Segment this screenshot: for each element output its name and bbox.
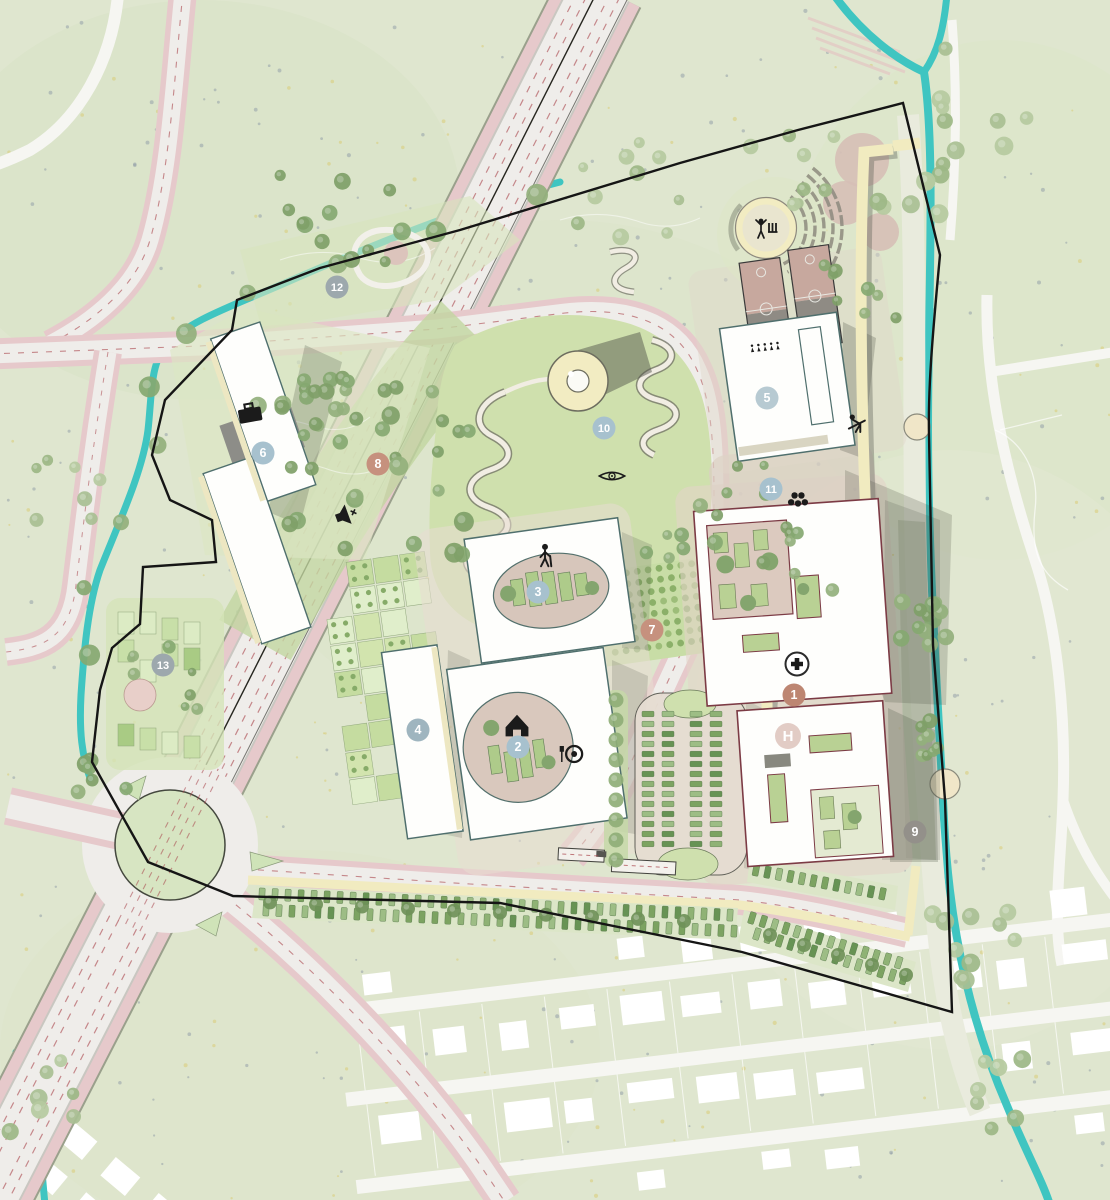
site-plan-svg: 12345678910111213H — [0, 0, 1110, 1200]
marker-12: 12 — [326, 276, 349, 299]
building-3 — [464, 518, 635, 663]
marker-8: 8 — [367, 453, 390, 476]
marker-6: 6 — [252, 442, 275, 465]
building-2 — [447, 648, 627, 840]
site-plan-map: 12345678910111213H — [0, 0, 1110, 1200]
marker-13: 13 — [152, 654, 175, 677]
marker-medical-cross — [786, 653, 809, 676]
marker-3: 3 — [527, 581, 550, 604]
marker-helipad: H — [775, 723, 801, 749]
svg-text:4: 4 — [415, 723, 422, 737]
building-1-lower — [737, 701, 894, 867]
marker-4: 4 — [407, 719, 430, 742]
svg-text:13: 13 — [157, 660, 169, 672]
marker-10: 10 — [593, 417, 616, 440]
svg-text:12: 12 — [331, 282, 343, 294]
svg-text:11: 11 — [765, 484, 777, 496]
svg-text:7: 7 — [649, 623, 656, 637]
marker-1: 1 — [783, 684, 806, 707]
svg-text:3: 3 — [535, 585, 542, 599]
svg-text:9: 9 — [912, 825, 919, 839]
svg-text:2: 2 — [515, 740, 522, 754]
community-gardens — [106, 598, 224, 770]
svg-text:10: 10 — [598, 423, 610, 435]
svg-text:8: 8 — [375, 457, 382, 471]
marker-5: 5 — [756, 387, 779, 410]
svg-text:H: H — [783, 728, 794, 745]
marker-9: 9 — [904, 821, 927, 844]
marker-7: 7 — [641, 619, 664, 642]
svg-text:5: 5 — [764, 391, 771, 405]
svg-text:6: 6 — [260, 446, 267, 460]
building-5 — [720, 312, 856, 461]
marker-11: 11 — [760, 478, 783, 501]
svg-text:1: 1 — [791, 688, 798, 702]
marker-2: 2 — [507, 736, 530, 759]
